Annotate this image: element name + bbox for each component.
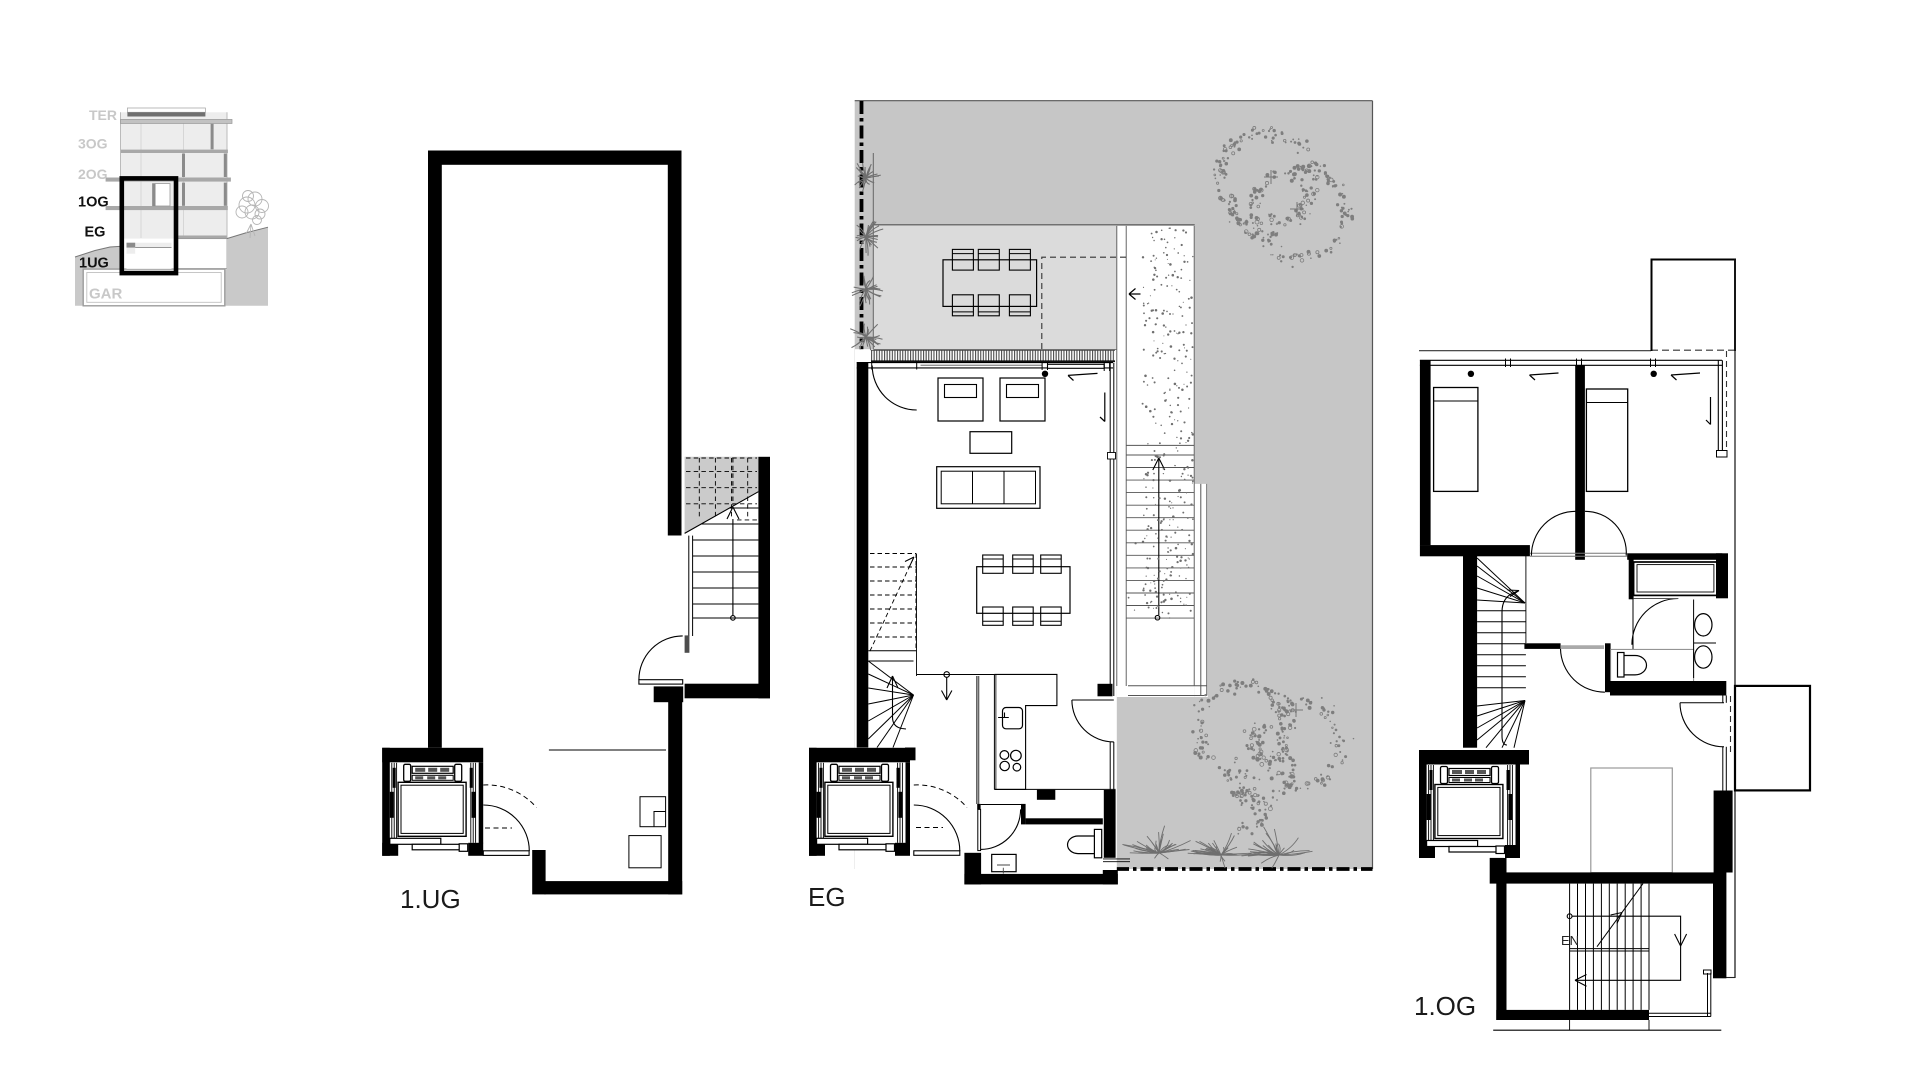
svg-text:EN: EN xyxy=(1561,933,1579,948)
svg-text:1.OG: 1.OG xyxy=(1414,991,1476,1021)
svg-text:GAR: GAR xyxy=(89,286,123,303)
svg-text:3OG: 3OG xyxy=(78,136,108,152)
svg-text:EG: EG xyxy=(85,225,106,241)
svg-text:1UG: 1UG xyxy=(79,256,109,272)
svg-text:1OG: 1OG xyxy=(78,195,109,211)
svg-text:EG: EG xyxy=(808,882,846,912)
svg-text:2OG: 2OG xyxy=(78,166,108,182)
svg-text:1.UG: 1.UG xyxy=(400,884,461,914)
svg-text:TER: TER xyxy=(89,107,117,123)
